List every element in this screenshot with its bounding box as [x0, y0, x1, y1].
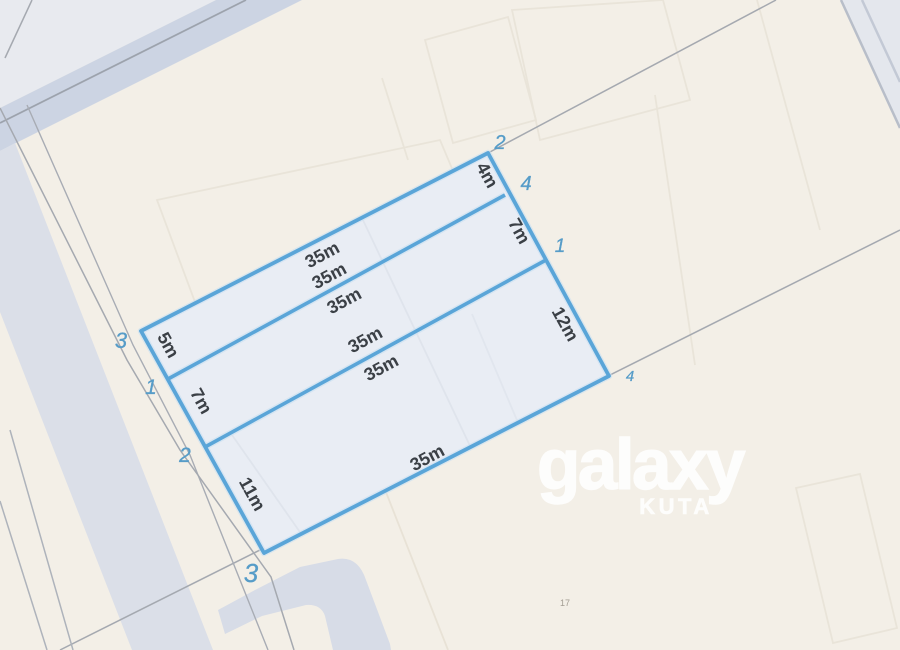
svg-text:17: 17: [560, 598, 570, 608]
svg-text:1: 1: [145, 376, 157, 399]
svg-text:2: 2: [178, 444, 191, 467]
svg-text:4: 4: [520, 173, 531, 195]
svg-text:1: 1: [555, 236, 566, 257]
svg-text:3: 3: [115, 328, 128, 353]
svg-text:3: 3: [244, 558, 259, 588]
svg-text:4: 4: [626, 368, 634, 385]
svg-text:KUTA: KUTA: [639, 494, 712, 519]
svg-text:2: 2: [493, 132, 505, 154]
